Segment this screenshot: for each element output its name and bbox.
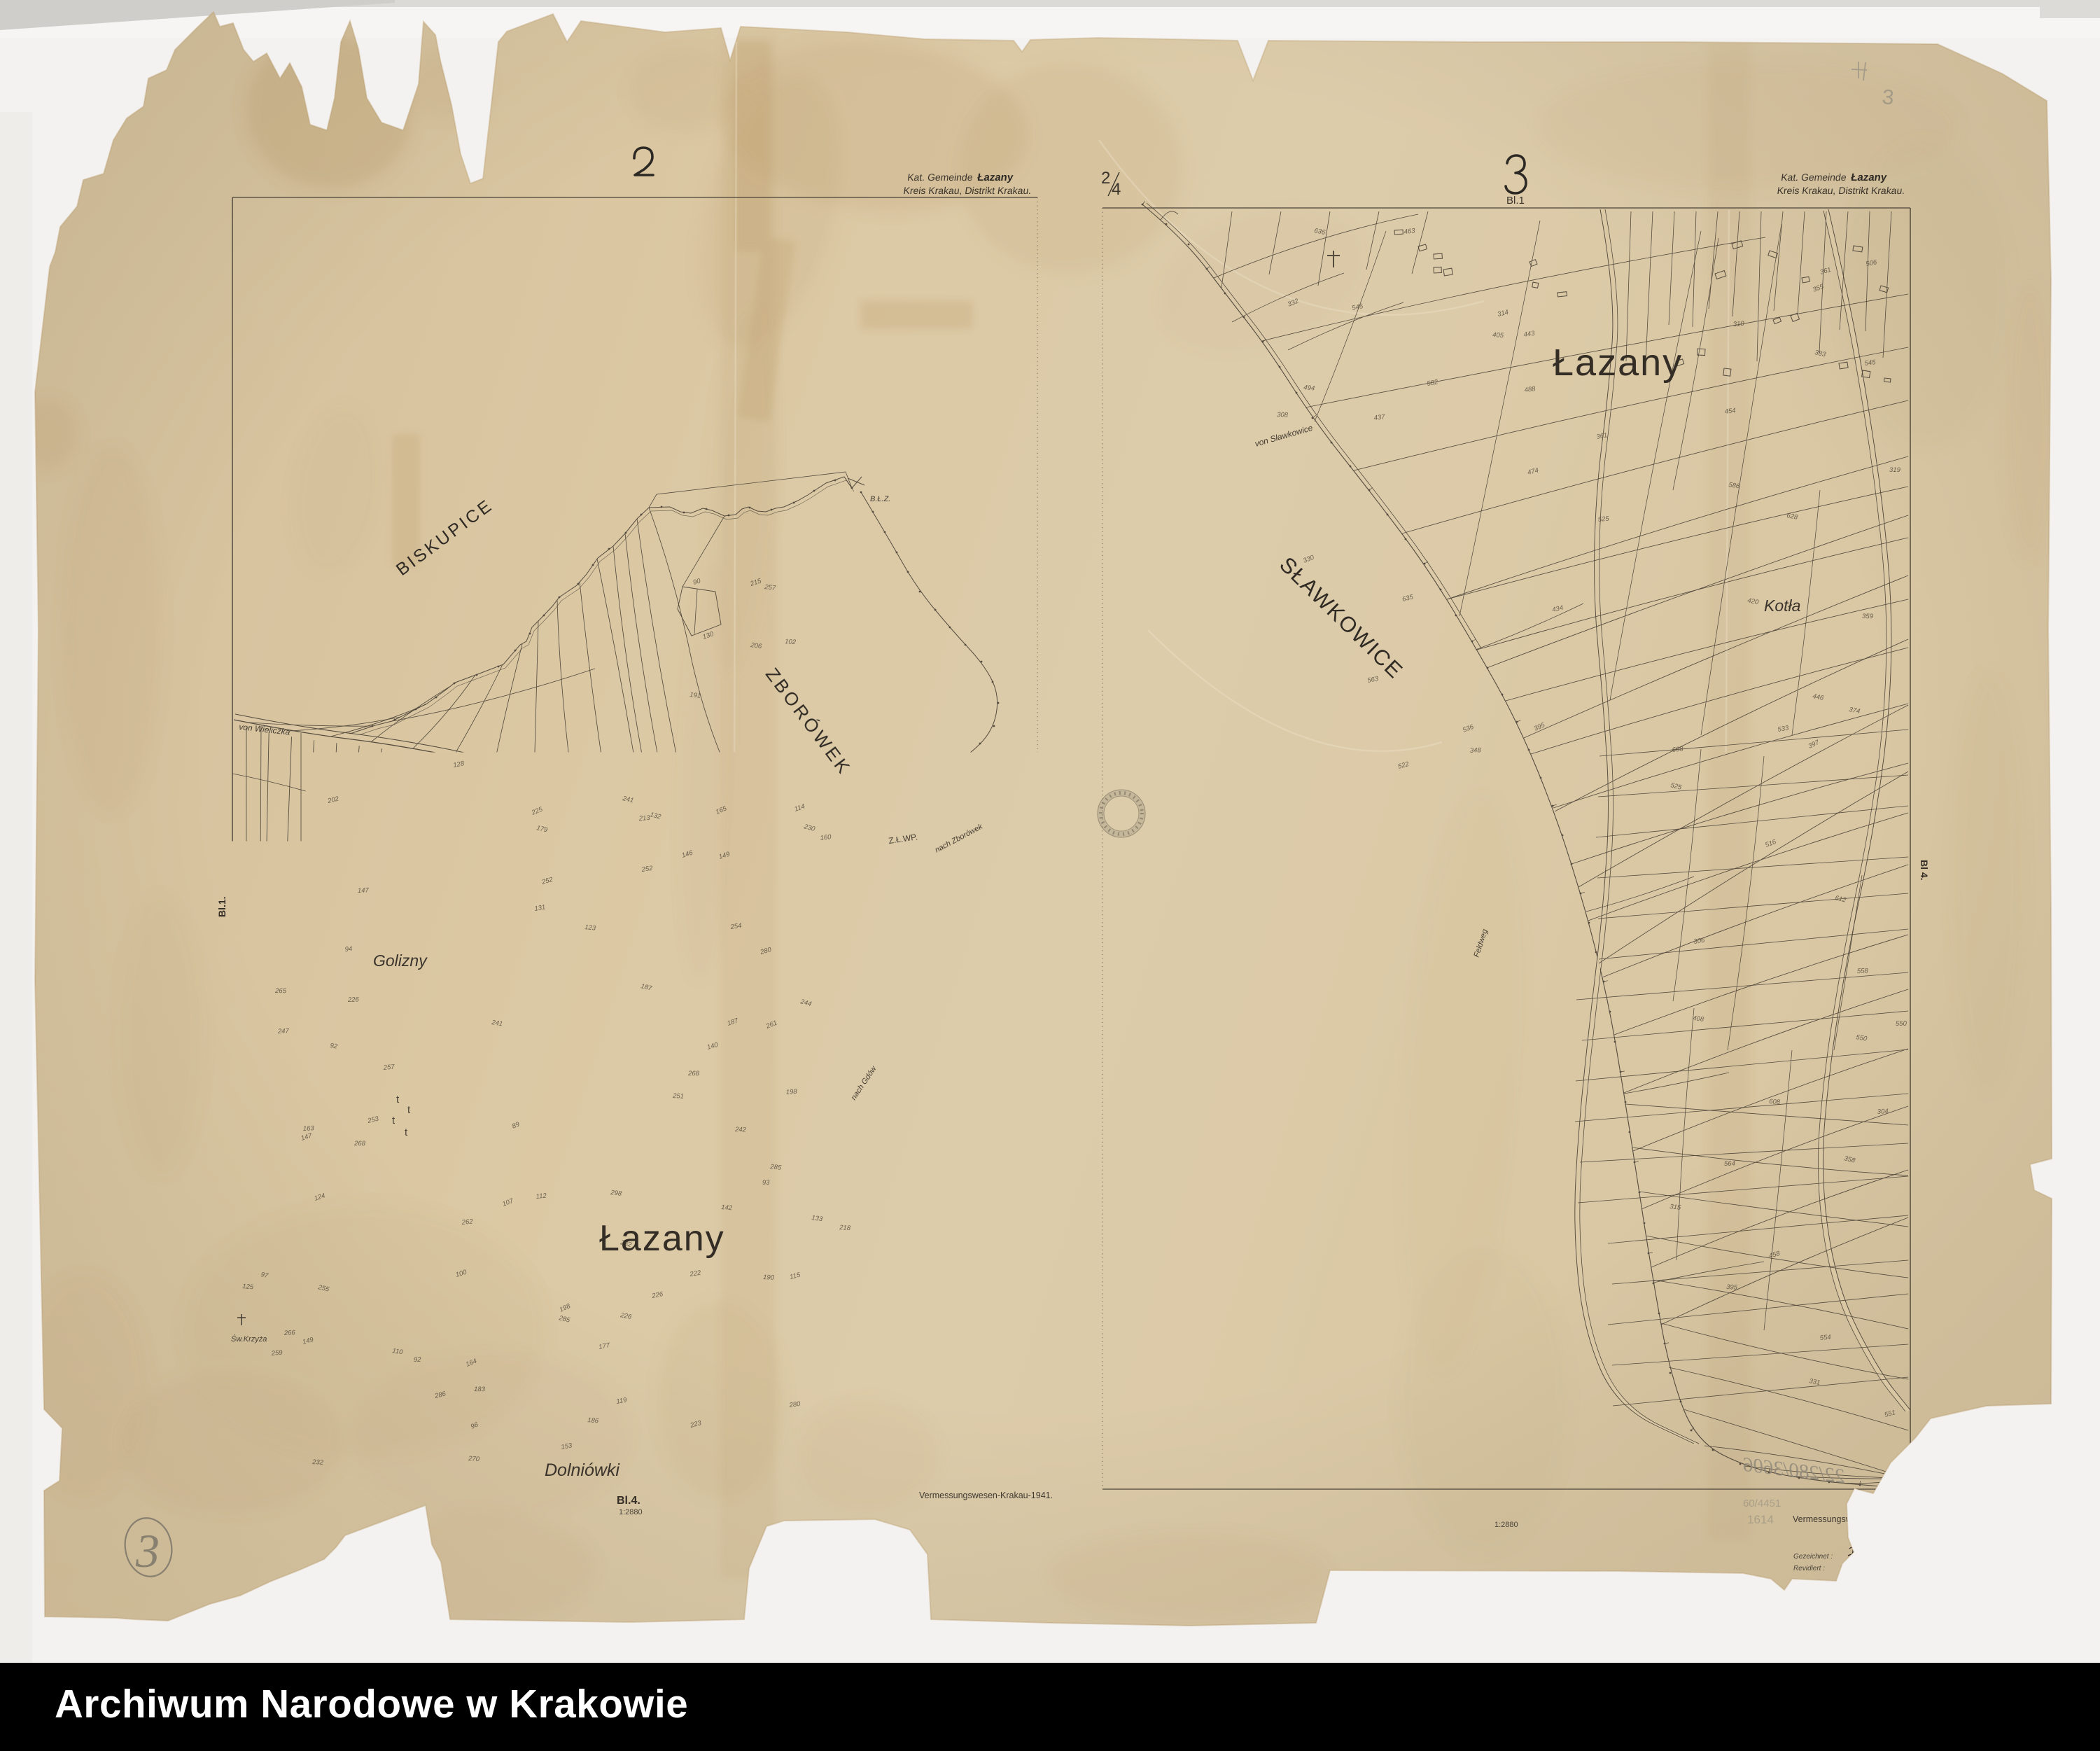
svg-text:Golizny: Golizny xyxy=(373,951,428,970)
svg-text:348: 348 xyxy=(1470,746,1482,755)
svg-text:Św.Krzyża: Św.Krzyża xyxy=(231,1334,267,1344)
svg-text:395: 395 xyxy=(1726,1283,1738,1292)
svg-text:525: 525 xyxy=(1597,515,1609,524)
svg-text:218: 218 xyxy=(839,1224,851,1232)
svg-text:Bl.1: Bl.1 xyxy=(1506,195,1525,207)
svg-text:268: 268 xyxy=(353,1140,366,1147)
svg-text:558: 558 xyxy=(1857,967,1869,975)
svg-text:213: 213 xyxy=(638,814,650,823)
svg-text:242: 242 xyxy=(734,1126,747,1134)
svg-text:247: 247 xyxy=(277,1027,290,1035)
svg-text:257: 257 xyxy=(764,583,777,592)
svg-text:92: 92 xyxy=(414,1356,421,1364)
svg-text:Łazany: Łazany xyxy=(599,1218,725,1259)
svg-text:Kreis Krakau, Distrikt Krakau.: Kreis Krakau, Distrikt Krakau. xyxy=(903,185,1032,196)
svg-text:257: 257 xyxy=(382,1063,395,1072)
svg-text:298: 298 xyxy=(610,1189,623,1198)
svg-text:Vermessungswesen-Krakau-1941.: Vermessungswesen-Krakau-1941. xyxy=(919,1491,1053,1500)
svg-text:308: 308 xyxy=(1277,411,1289,419)
svg-text:443: 443 xyxy=(1523,330,1536,339)
svg-text:304: 304 xyxy=(1877,1108,1889,1116)
svg-text:133: 133 xyxy=(811,1214,824,1223)
svg-text:359: 359 xyxy=(1862,613,1874,620)
svg-text:Bl.4.: Bl.4. xyxy=(617,1495,640,1507)
svg-text:1:2880: 1:2880 xyxy=(619,1508,643,1516)
svg-text:Bl.1.: Bl.1. xyxy=(216,896,227,917)
svg-text:Gezeichnet :: Gezeichnet : xyxy=(1793,1553,1833,1561)
svg-text:454: 454 xyxy=(1724,407,1736,416)
svg-text:Kat. Gemeinde: Kat. Gemeinde xyxy=(1780,172,1847,183)
svg-text:Łazany: Łazany xyxy=(1553,342,1683,384)
svg-text:147: 147 xyxy=(358,886,370,895)
svg-text:Łazany: Łazany xyxy=(1850,172,1888,183)
svg-text:554: 554 xyxy=(1819,1334,1831,1342)
svg-text:163: 163 xyxy=(303,1124,315,1133)
svg-text:285: 285 xyxy=(769,1163,783,1172)
svg-text:183: 183 xyxy=(474,1386,486,1393)
svg-text:564: 564 xyxy=(1724,1160,1735,1168)
svg-text:123: 123 xyxy=(584,923,597,933)
svg-text:405: 405 xyxy=(1492,331,1504,340)
svg-text:266: 266 xyxy=(283,1329,296,1337)
svg-text:254: 254 xyxy=(729,922,742,931)
svg-text:608: 608 xyxy=(1672,745,1684,754)
svg-text:Kreis Krakau, Distrikt Krakau.: Kreis Krakau, Distrikt Krakau. xyxy=(1777,185,1906,196)
svg-text:Archiwum Narodowe w Krakowie: Archiwum Narodowe w Krakowie xyxy=(55,1682,688,1726)
svg-text:Revidiert :: Revidiert : xyxy=(1793,1565,1825,1572)
svg-text:198: 198 xyxy=(785,1088,797,1096)
svg-text:1:2880: 1:2880 xyxy=(1494,1521,1518,1529)
svg-text:102: 102 xyxy=(785,638,797,646)
svg-text:112: 112 xyxy=(535,1192,547,1201)
svg-text:268: 268 xyxy=(687,1070,700,1077)
svg-text:4: 4 xyxy=(1112,180,1121,199)
svg-text:494: 494 xyxy=(1303,384,1315,393)
svg-text:259: 259 xyxy=(270,1349,283,1358)
svg-text:B.Ł.Z.: B.Ł.Z. xyxy=(870,495,890,503)
svg-text:3: 3 xyxy=(135,1524,160,1577)
svg-text:125: 125 xyxy=(242,1283,254,1291)
svg-text:488: 488 xyxy=(1524,385,1536,394)
svg-text:Łazany: Łazany xyxy=(976,172,1014,183)
svg-text:550: 550 xyxy=(1896,1020,1907,1028)
svg-text:2: 2 xyxy=(1101,169,1110,188)
svg-text:319: 319 xyxy=(1889,466,1901,474)
svg-text:463: 463 xyxy=(1403,227,1416,236)
svg-text:310: 310 xyxy=(1732,320,1744,328)
svg-text:191: 191 xyxy=(689,691,701,700)
svg-text:Bl 4.: Bl 4. xyxy=(1919,860,1930,881)
svg-text:270: 270 xyxy=(468,1455,480,1463)
svg-text:608: 608 xyxy=(1769,1098,1781,1106)
svg-text:226: 226 xyxy=(347,996,360,1004)
svg-text:Kotła: Kotła xyxy=(1764,597,1800,615)
svg-text:251: 251 xyxy=(672,1092,684,1101)
svg-text:186: 186 xyxy=(587,1416,599,1425)
svg-text:545: 545 xyxy=(1864,358,1877,368)
svg-text:60/4451: 60/4451 xyxy=(1743,1498,1781,1509)
svg-text:93: 93 xyxy=(762,1179,771,1187)
svg-text:94: 94 xyxy=(344,945,353,954)
svg-text:1614: 1614 xyxy=(1747,1513,1774,1526)
svg-text:232: 232 xyxy=(311,1458,324,1467)
svg-text:437: 437 xyxy=(1373,413,1386,422)
svg-text:142: 142 xyxy=(721,1204,733,1212)
svg-text:3: 3 xyxy=(1881,85,1895,109)
svg-text:Dolniówki: Dolniówki xyxy=(545,1460,620,1480)
svg-text:262: 262 xyxy=(461,1218,474,1227)
svg-text:Kat. Gemeinde: Kat. Gemeinde xyxy=(906,172,974,183)
svg-text:160: 160 xyxy=(820,833,832,842)
svg-text:265: 265 xyxy=(274,987,287,995)
svg-text:408: 408 xyxy=(1693,1014,1705,1024)
svg-text:315: 315 xyxy=(1669,1203,1682,1212)
svg-text:190: 190 xyxy=(763,1274,775,1282)
